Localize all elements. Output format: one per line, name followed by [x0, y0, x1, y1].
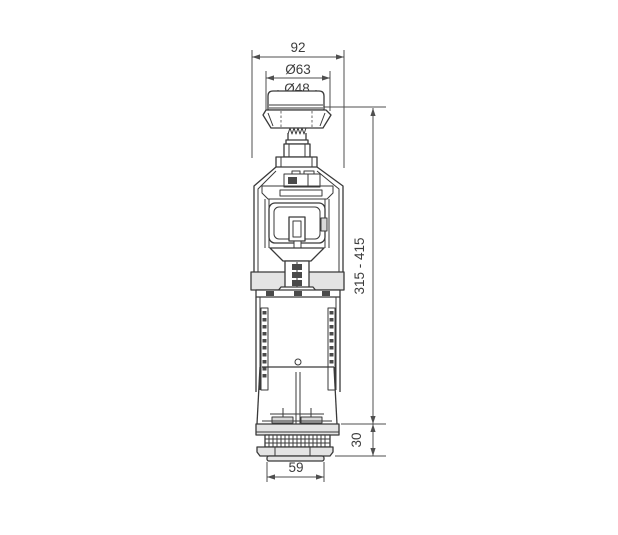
guide-rails — [261, 308, 335, 390]
dim-base-height: 30 — [335, 424, 386, 456]
push-button — [263, 91, 331, 128]
drawing-canvas: 92 Ø63 Ø48 315 - 415 30 — [0, 0, 618, 535]
dim-label-base-height: 30 — [349, 432, 364, 447]
lock-nut — [257, 447, 333, 456]
button-stem — [284, 128, 310, 157]
dim-base-width: 59 — [267, 460, 324, 482]
housing-interior — [262, 171, 333, 258]
dim-label-overall-width: 92 — [290, 40, 305, 55]
dim-label-button-outer-diameter: Ø63 — [285, 62, 311, 77]
flush-valve-technical-drawing: 92 Ø63 Ø48 315 - 415 30 — [0, 0, 618, 535]
valve-lower-body — [256, 290, 340, 392]
mounting-flange — [256, 424, 339, 435]
valve-seat — [262, 408, 332, 423]
outlet-lip — [267, 456, 324, 461]
thread-section — [265, 435, 330, 447]
dim-label-height-range: 315 - 415 — [352, 237, 367, 294]
dim-label-base-width: 59 — [288, 460, 303, 475]
float-cup — [257, 367, 337, 424]
